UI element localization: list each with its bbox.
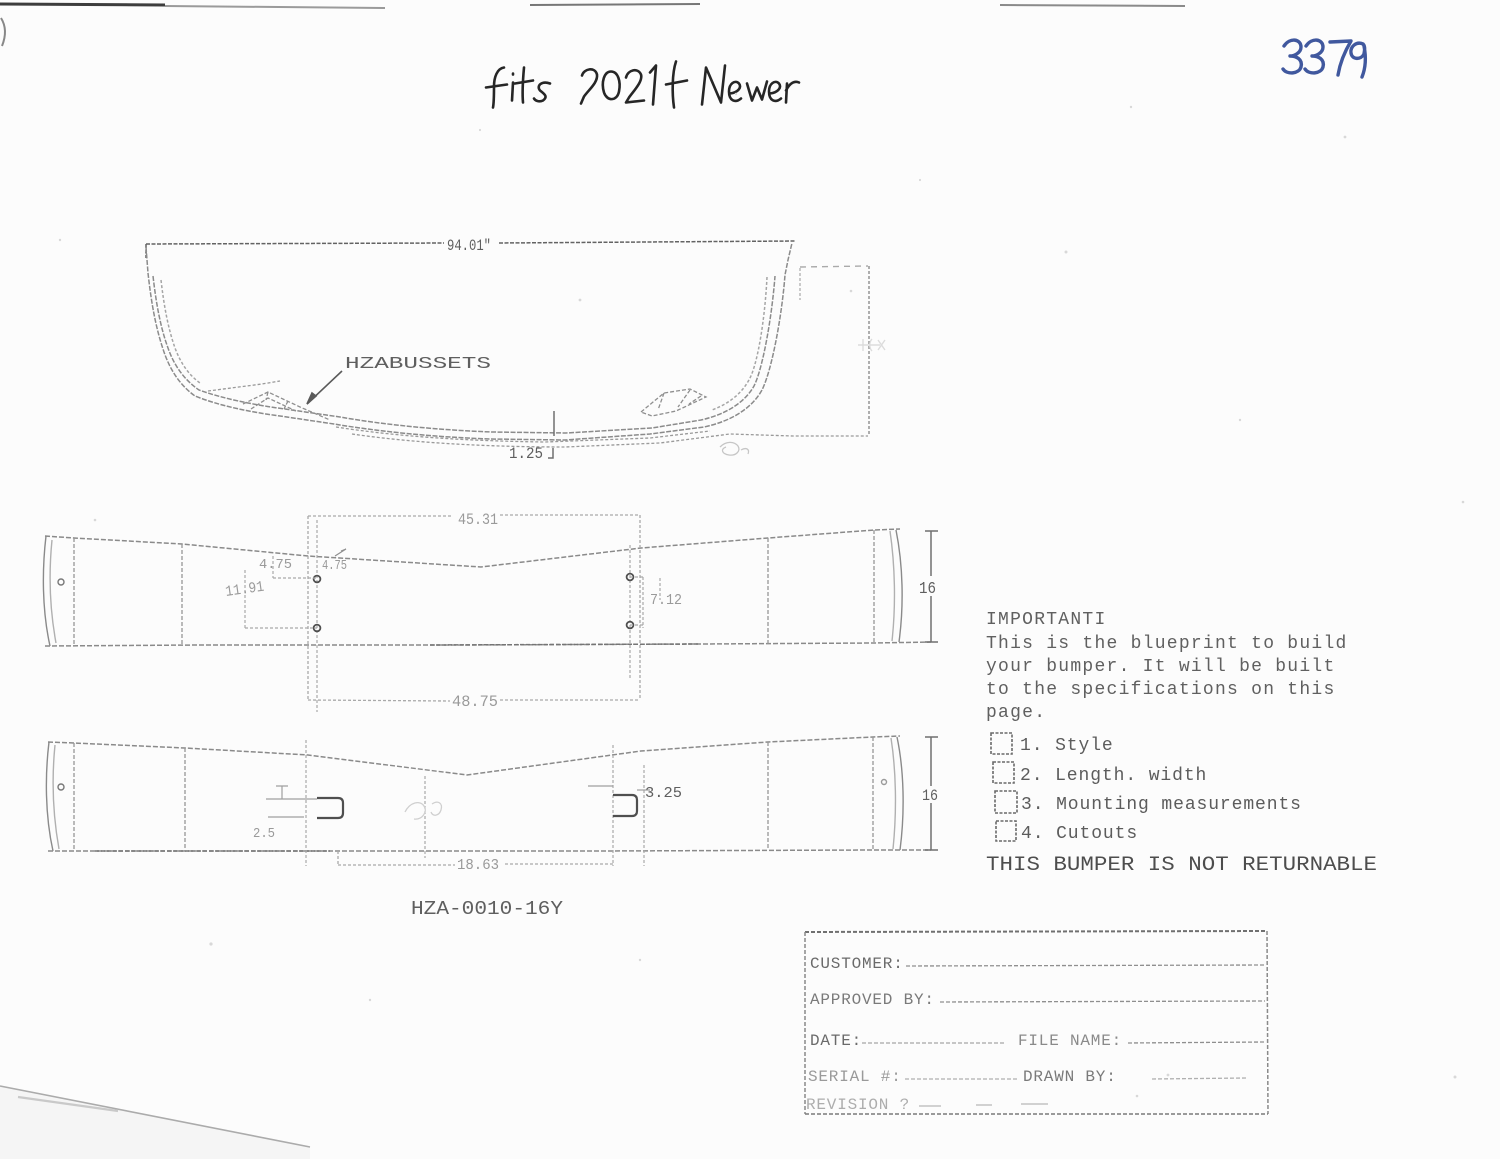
svg-text:THIS BUMPER IS NOT RETURNABLE: THIS BUMPER IS NOT RETURNABLE — [986, 854, 1377, 877]
svg-text:94.01": 94.01" — [447, 237, 491, 255]
svg-text:3. Mounting measurements: 3. Mounting measurements — [1021, 795, 1302, 815]
svg-text:This is the blueprint to build: This is the blueprint to build — [986, 634, 1348, 654]
svg-text:7.12: 7.12 — [650, 592, 682, 609]
svg-text:1.25: 1.25 — [509, 445, 543, 463]
svg-text:2.5: 2.5 — [253, 826, 275, 842]
svg-text:2. Length. width: 2. Length. width — [1020, 766, 1207, 786]
svg-text:HZABUSSETS: HZABUSSETS — [345, 355, 491, 374]
svg-text:DATE:: DATE: — [810, 1032, 862, 1050]
svg-text:3.25: 3.25 — [645, 785, 682, 802]
svg-text:REVISION ?: REVISION ? — [806, 1096, 910, 1114]
svg-text:1. Style: 1. Style — [1020, 736, 1114, 756]
svg-text:FILE NAME:: FILE NAME: — [1018, 1032, 1122, 1050]
svg-text:DRAWN BY:: DRAWN BY: — [1023, 1068, 1117, 1086]
svg-text:16: 16 — [922, 787, 938, 805]
svg-text:48.75: 48.75 — [452, 693, 498, 711]
svg-text:16: 16 — [919, 580, 936, 599]
svg-text:4.75: 4.75 — [322, 558, 347, 574]
svg-text:18.63: 18.63 — [457, 857, 499, 874]
svg-text:APPROVED BY:: APPROVED BY: — [810, 991, 935, 1009]
svg-text:45.31: 45.31 — [458, 511, 498, 529]
svg-text:SERIAL #:: SERIAL #: — [808, 1068, 902, 1086]
svg-text:HZA-0010-16Y: HZA-0010-16Y — [411, 898, 564, 920]
svg-text:11.91: 11.91 — [224, 579, 265, 601]
svg-text:your bumper. It will be built: your bumper. It will be built — [986, 657, 1336, 677]
svg-text:4. Cutouts: 4. Cutouts — [1021, 824, 1138, 844]
svg-text:4.75: 4.75 — [259, 557, 292, 573]
svg-text:to the specifications on this: to the specifications on this — [986, 680, 1336, 700]
svg-text:page.: page. — [986, 703, 1046, 723]
svg-text:CUSTOMER:: CUSTOMER: — [810, 955, 904, 973]
svg-text:IMPORTANTI: IMPORTANTI — [986, 610, 1107, 630]
